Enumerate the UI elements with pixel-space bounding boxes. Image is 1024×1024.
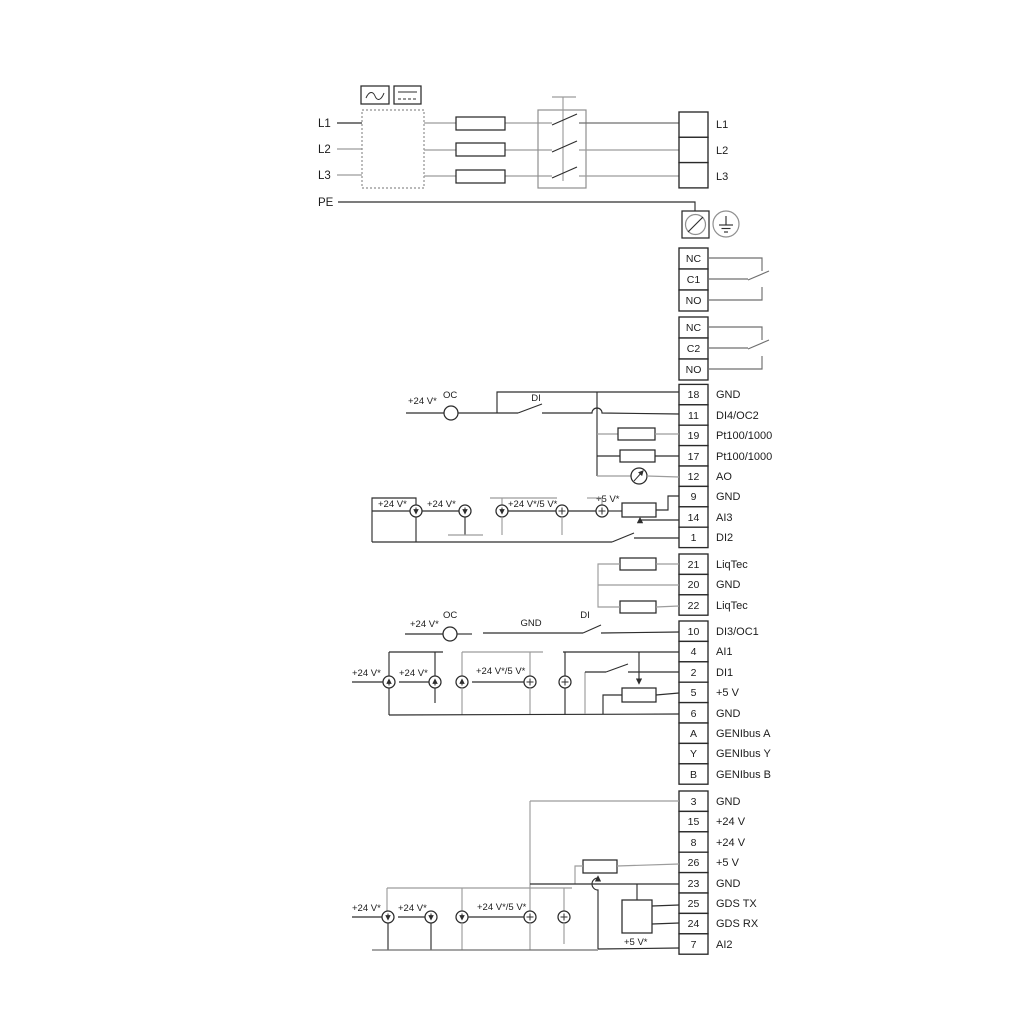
relay1-blade — [748, 271, 769, 280]
pot-gnd-wire — [603, 695, 622, 714]
terminal-label: DI2 — [716, 532, 733, 544]
supply-label: +24 V* — [427, 499, 456, 510]
switch-blade-l1 — [552, 114, 577, 125]
terminal-number: B — [690, 769, 697, 781]
dc-symbol-box — [394, 86, 421, 104]
supply-label: +24 V* — [378, 499, 407, 510]
terminal-label: L3 — [716, 171, 728, 183]
wiring-diagram-page: L1 L2 L3 PE L — [0, 0, 1024, 1024]
terminal-number: 20 — [688, 579, 700, 591]
di1-switch-blade — [606, 664, 628, 672]
gds-rx-wire — [652, 923, 679, 924]
relay1-no-wire — [708, 287, 762, 300]
terminal-label: GDS RX — [716, 918, 759, 930]
terminal-label: +5 V — [716, 857, 740, 869]
di3-switch-blade — [583, 625, 601, 633]
gnd18-return-wire — [497, 392, 679, 413]
terminal-number: 7 — [691, 939, 697, 951]
terminal-label: LiqTec — [716, 600, 748, 612]
terminal-label: GENIbus B — [716, 769, 771, 781]
terminal-number: 14 — [688, 512, 700, 524]
terminal-number: 23 — [688, 878, 700, 890]
supply-label: +5 V* — [624, 937, 648, 948]
liqtec2-wire — [598, 585, 620, 607]
terminal-label: GND — [716, 579, 741, 591]
open-collector-icon — [443, 627, 457, 641]
terminal-cell — [679, 163, 708, 188]
terminal-number: 19 — [688, 430, 700, 442]
liqtec1-wire — [598, 564, 620, 585]
terminal-label: AO — [716, 471, 732, 483]
relay1-no: NO — [686, 295, 702, 307]
terminal-cell — [679, 137, 708, 162]
io-terminals-3: 3 15 8 26 23 25 24 7 GND +24 V +24 V +5 … — [352, 791, 759, 954]
supply-label: +24 V*/5 V* — [477, 902, 527, 913]
gds-sensor-box — [622, 900, 652, 933]
supply-label: +5 V* — [596, 494, 620, 505]
fuse-l2 — [456, 143, 505, 156]
terminal-label: Pt100/1000 — [716, 430, 772, 442]
relay1-nc: NC — [686, 253, 702, 265]
terminal-number: 22 — [688, 600, 700, 612]
resistor-pt100-1 — [618, 428, 655, 440]
supply-label: +24 V* — [408, 396, 437, 407]
terminal-label: L1 — [716, 119, 728, 131]
terminal-number: 18 — [688, 389, 700, 401]
supply-label: +24 V*/5 V* — [508, 499, 558, 510]
di2-switch-blade — [612, 533, 634, 542]
terminal-number: 3 — [691, 796, 697, 808]
terminal-number: 9 — [691, 491, 697, 503]
supply-label: +24 V*/5 V* — [476, 666, 526, 677]
terminal-number: 26 — [688, 857, 700, 869]
terminal-label: Pt100/1000 — [716, 451, 772, 463]
supply-label: +24 V* — [410, 619, 439, 630]
phase-label-l2: L2 — [318, 144, 331, 156]
terminal-label: DI3/OC1 — [716, 626, 759, 638]
gnd6-rail — [389, 714, 679, 715]
terminal-number: Y — [690, 748, 697, 760]
relay2-blade — [748, 340, 769, 349]
terminal-cell — [679, 112, 708, 137]
resistor-pt100-2 — [620, 450, 655, 462]
relay2-no-wire — [708, 356, 762, 369]
terminal-number: 15 — [688, 816, 700, 828]
relay1-c1: C1 — [687, 274, 701, 286]
supply-label: +24 V* — [352, 668, 381, 679]
gds-tx-wire — [652, 905, 679, 906]
ai2-wire — [598, 948, 679, 949]
fuse-l3 — [456, 170, 505, 183]
relay2-nc: NC — [686, 322, 702, 334]
open-collector-icon — [444, 406, 458, 420]
terminal-label: DI4/OC2 — [716, 410, 759, 422]
terminal-label: GND — [716, 491, 741, 503]
terminal-number: A — [690, 728, 697, 740]
terminal-number: 25 — [688, 898, 700, 910]
potentiometer — [583, 860, 617, 873]
terminal-label: +5 V — [716, 687, 740, 699]
relay2-nc-wire — [708, 327, 762, 340]
oc-label: OC — [443, 390, 457, 401]
supply-label: +24 V* — [352, 903, 381, 914]
supply-label: +24 V* — [399, 668, 428, 679]
terminal-label: +24 V — [716, 837, 746, 849]
pot-supply-wire — [656, 496, 679, 510]
terminal-number: 8 — [691, 837, 697, 849]
relay-outputs-section: NC C1 NO NC C2 NO — [679, 248, 769, 380]
terminal-number: 24 — [688, 918, 700, 930]
relay1-nc-wire — [708, 258, 762, 271]
switch-blade-l2 — [552, 141, 577, 152]
switch-blade-l3 — [552, 167, 577, 178]
terminal-label: GND — [716, 796, 741, 808]
potentiometer — [622, 503, 656, 517]
terminal-label: AI1 — [716, 646, 733, 658]
phase-label-pe: PE — [318, 197, 334, 209]
terminal-number: 5 — [691, 687, 697, 699]
terminal-number: 11 — [688, 410, 699, 422]
terminal-number: 17 — [688, 451, 700, 463]
terminal-number: 21 — [688, 559, 700, 571]
terminal-label: L2 — [716, 145, 728, 157]
di4-wire — [542, 408, 679, 414]
relay2-c2: C2 — [687, 343, 701, 355]
terminal-number: 2 — [691, 667, 697, 679]
supply-label: +24 V* — [398, 903, 427, 914]
liqtec-terminals: 21 20 22 LiqTec GND LiqTec — [598, 554, 748, 615]
terminal-number: 4 — [691, 646, 697, 658]
liqtec-sensor-2 — [620, 601, 656, 613]
gnd-label: GND — [520, 618, 541, 629]
di3-wire — [601, 632, 679, 633]
oc-label: OC — [443, 610, 457, 621]
terminal-label: LiqTec — [716, 559, 748, 571]
terminal-number: 6 — [691, 708, 697, 720]
terminal-number: 12 — [688, 471, 700, 483]
terminal-number: 10 — [688, 626, 700, 638]
relay2-no: NO — [686, 364, 702, 376]
phase-label-l3: L3 — [318, 170, 331, 182]
wiring-diagram: L1 L2 L3 PE L — [0, 0, 1024, 1024]
wire-pe — [338, 202, 695, 211]
liqtec-sensor-1 — [620, 558, 656, 570]
potentiometer — [622, 688, 656, 702]
di-label: DI — [531, 393, 541, 404]
terminal-label: AI2 — [716, 939, 733, 951]
io-terminals-2: 10 4 2 5 6 A Y B DI3/OC1 AI1 DI1 +5 V GN… — [352, 610, 771, 784]
fuse-l1 — [456, 117, 505, 130]
io-terminals-1: 18 11 19 17 12 9 14 1 GND DI4/OC2 Pt100/… — [372, 384, 772, 547]
di4-switch-blade — [518, 404, 542, 413]
terminal-label: GND — [716, 878, 741, 890]
pot-wiper-arrow — [592, 877, 598, 950]
terminal-label: GND — [716, 708, 741, 720]
di-label: DI — [580, 610, 590, 621]
terminal-number: 1 — [691, 532, 697, 544]
terminal-label: GENIbus Y — [716, 748, 771, 760]
terminal-label: GENIbus A — [716, 728, 771, 740]
phase-label-l1: L1 — [318, 118, 331, 130]
terminal-label: DI1 — [716, 667, 733, 679]
terminal-label: GND — [716, 389, 741, 401]
filter-box — [362, 110, 424, 188]
power-input-section: L1 L2 L3 PE L — [318, 86, 739, 238]
terminal-label: AI3 — [716, 512, 733, 524]
pot-gnd-wire — [575, 866, 583, 884]
terminal-label: +24 V — [716, 816, 746, 828]
terminal-label: GDS TX — [716, 898, 757, 910]
